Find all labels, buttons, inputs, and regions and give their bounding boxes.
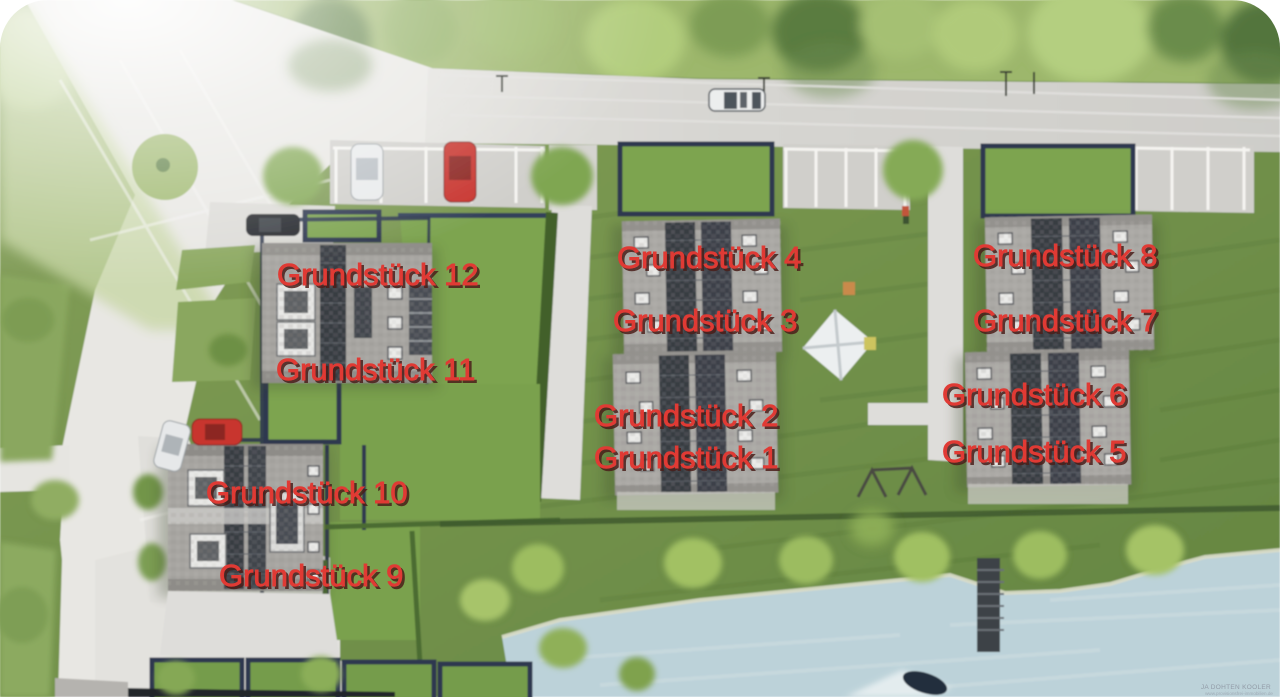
svg-text:Grundstück 10: Grundstück 10 [206,475,408,510]
svg-text:Grundstück 11: Grundstück 11 [276,352,475,387]
svg-text:Grundstück 6: Grundstück 6 [942,377,1126,412]
svg-text:JA DOHTEN KOOLER: JA DOHTEN KOOLER [1201,684,1271,691]
svg-text:www.provisionsfrei-immobilien.: www.provisionsfrei-immobilien.de [1205,691,1273,696]
svg-text:Grundstück 12: Grundstück 12 [277,257,479,292]
svg-text:Grundstück 4: Grundstück 4 [617,240,801,275]
svg-text:Grundstück 1: Grundstück 1 [594,440,778,475]
svg-text:Grundstück 2: Grundstück 2 [594,398,778,433]
svg-text:Grundstück 8: Grundstück 8 [973,238,1157,273]
svg-text:Grundstück 7: Grundstück 7 [973,303,1157,338]
svg-text:Grundstück 3: Grundstück 3 [613,303,797,338]
svg-text:Grundstück 9: Grundstück 9 [219,558,403,593]
svg-text:Grundstück 5: Grundstück 5 [942,434,1126,469]
